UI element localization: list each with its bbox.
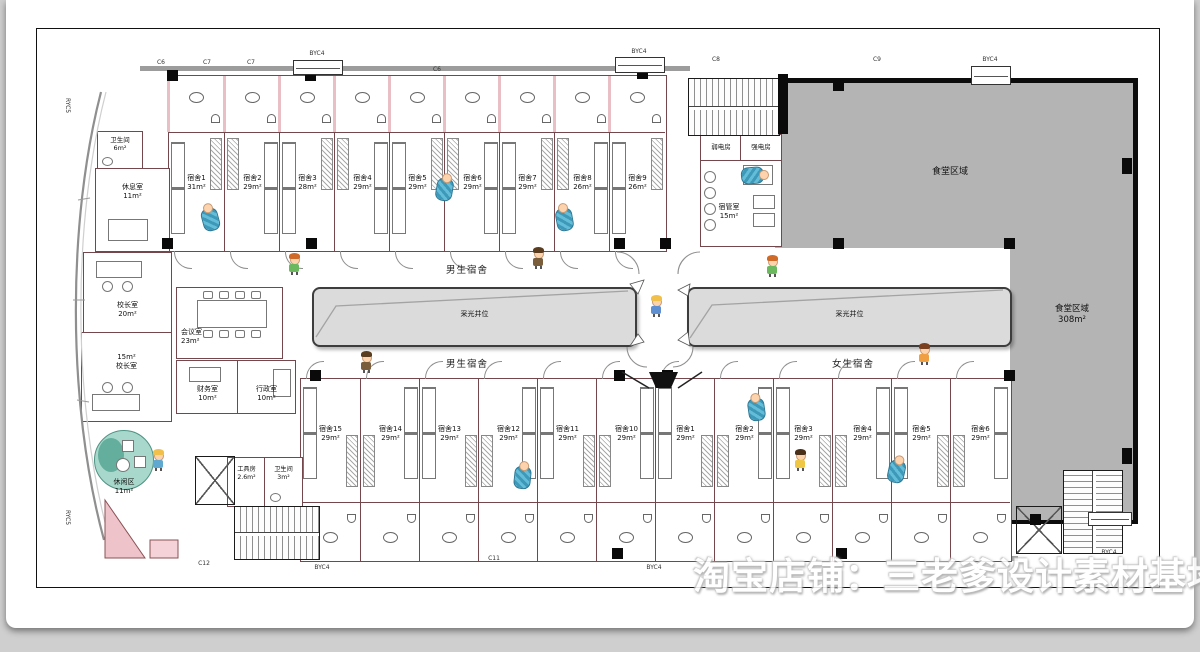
sleeping-child [513, 465, 532, 490]
wall-column [1004, 238, 1015, 249]
table [116, 458, 130, 472]
child-figure [794, 450, 807, 470]
wall-column [1122, 158, 1132, 174]
wall-column [660, 238, 671, 249]
wall-column [1030, 514, 1041, 525]
child-figure [766, 256, 779, 276]
corridor-label-boys-top: 男生宿舍 [446, 262, 488, 276]
staircase-bottom-left [234, 506, 320, 560]
wall-column [310, 370, 321, 381]
child-figure [650, 296, 663, 316]
wall-column [612, 548, 623, 559]
wall-column [778, 74, 788, 134]
wall-column [1122, 448, 1132, 464]
page: 食堂区域 食堂区域 308m² 宿舍131m²宿舍229m²宿舍328m²宿舍4… [0, 0, 1200, 652]
child-figure [360, 352, 373, 372]
child-figure [288, 254, 301, 274]
canteen2-label: 食堂区域 [1055, 304, 1089, 314]
sleeping-child [746, 397, 766, 422]
wall-column [1004, 370, 1015, 381]
corridor-label-boys-bottom: 男生宿舍 [446, 356, 488, 370]
watermark: 淘宝店铺：三老爹设计素材基地 [693, 546, 1200, 600]
wall-column [162, 238, 173, 249]
sleeping-child [740, 166, 764, 185]
window [1088, 512, 1132, 526]
window [293, 60, 343, 75]
wall-column [833, 80, 844, 91]
leisure-label: 休闲区 [114, 478, 135, 486]
elevator-bottom-left [195, 456, 235, 505]
cushion [122, 440, 134, 452]
wall-column [614, 370, 625, 381]
wall-column [614, 238, 625, 249]
wall-column [167, 70, 178, 81]
canteen-label: 食堂区域 [880, 167, 1020, 179]
wall-column [306, 238, 317, 249]
window [615, 57, 665, 73]
canteen2-area: 308m² [1058, 315, 1086, 325]
window [971, 66, 1011, 85]
cushion [134, 456, 146, 468]
staircase-top-right [688, 78, 780, 136]
child-figure [152, 450, 165, 470]
child-figure [532, 248, 545, 268]
wall-column [662, 370, 673, 381]
child-figure [918, 344, 931, 364]
wall-column [833, 238, 844, 249]
corridor-label-girls: 女生宿舍 [832, 356, 874, 370]
